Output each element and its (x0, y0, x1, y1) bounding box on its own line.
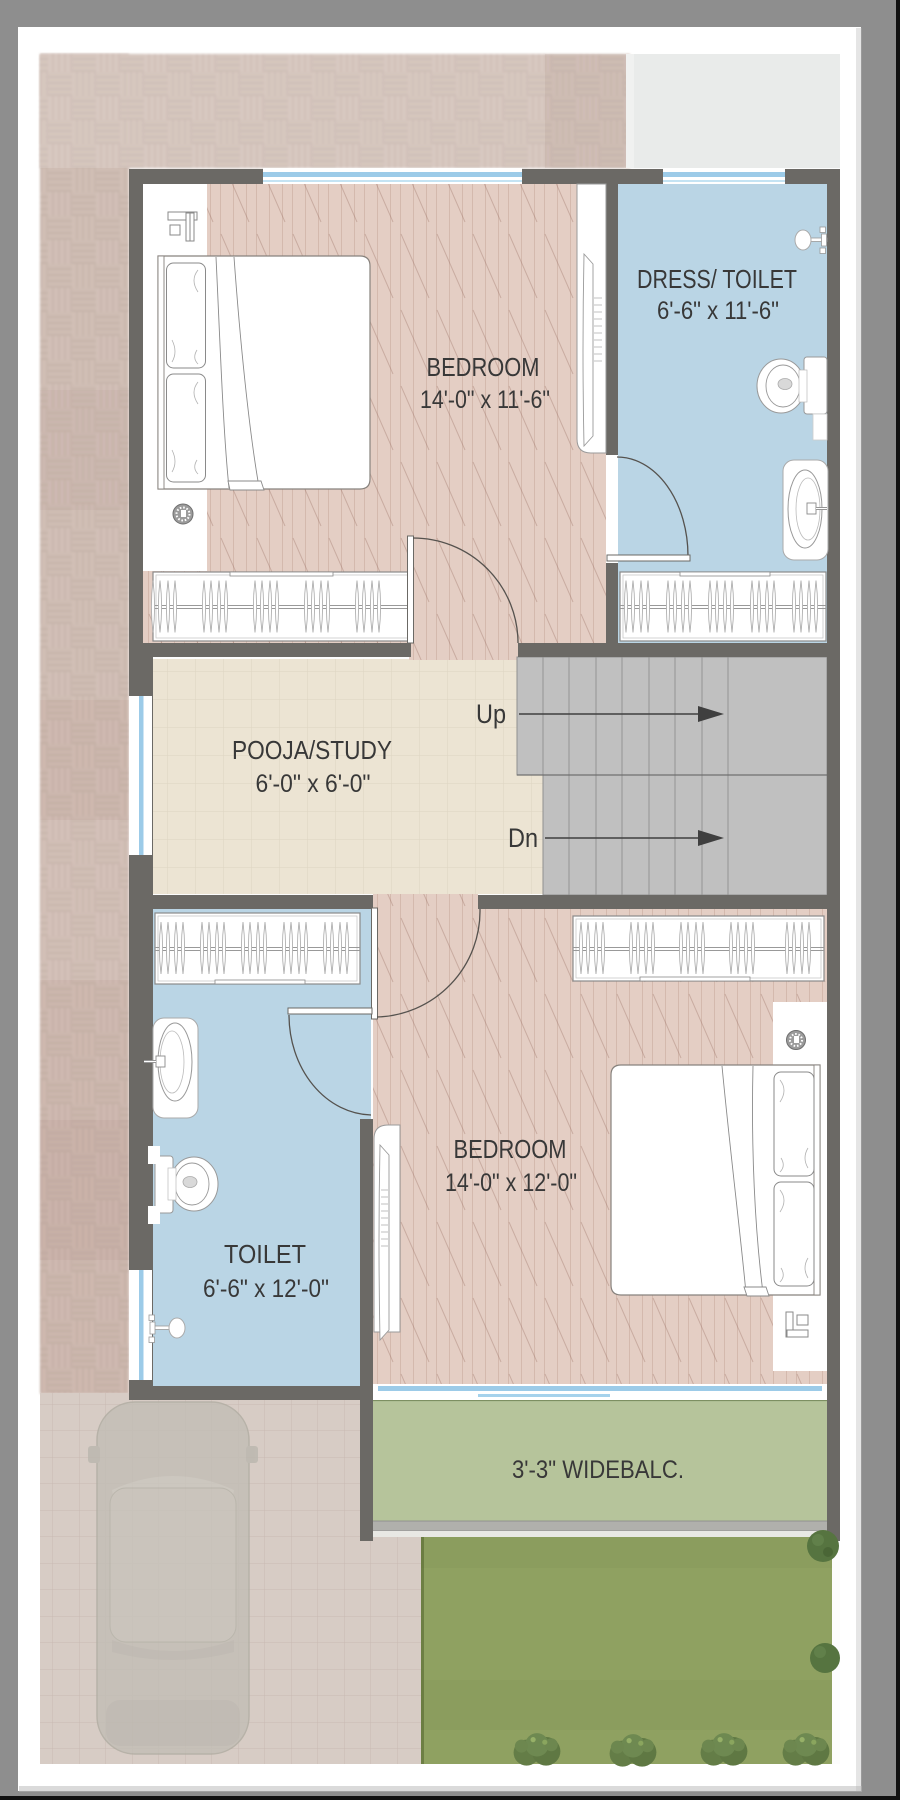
svg-text:Dn: Dn (508, 823, 538, 853)
svg-text:POOJA/STUDY: POOJA/STUDY (232, 735, 392, 765)
svg-text:DRESS/ TOILET: DRESS/ TOILET (637, 264, 797, 294)
svg-text:3'-3" WIDEBALC.: 3'-3" WIDEBALC. (512, 1456, 684, 1484)
svg-text:14'-0" x 11'-6": 14'-0" x 11'-6" (420, 386, 550, 414)
svg-text:6'-0" x 6'-0": 6'-0" x 6'-0" (256, 770, 371, 798)
svg-text:TOILET: TOILET (224, 1239, 306, 1269)
svg-text:14'-0" x 12'-0": 14'-0" x 12'-0" (445, 1169, 577, 1197)
svg-text:BEDROOM: BEDROOM (454, 1134, 567, 1164)
svg-text:Up: Up (476, 699, 506, 729)
svg-text:6'-6" x 11'-6": 6'-6" x 11'-6" (657, 297, 779, 325)
svg-text:6'-6" x 12'-0": 6'-6" x 12'-0" (203, 1275, 329, 1303)
svg-text:BEDROOM: BEDROOM (427, 352, 540, 382)
